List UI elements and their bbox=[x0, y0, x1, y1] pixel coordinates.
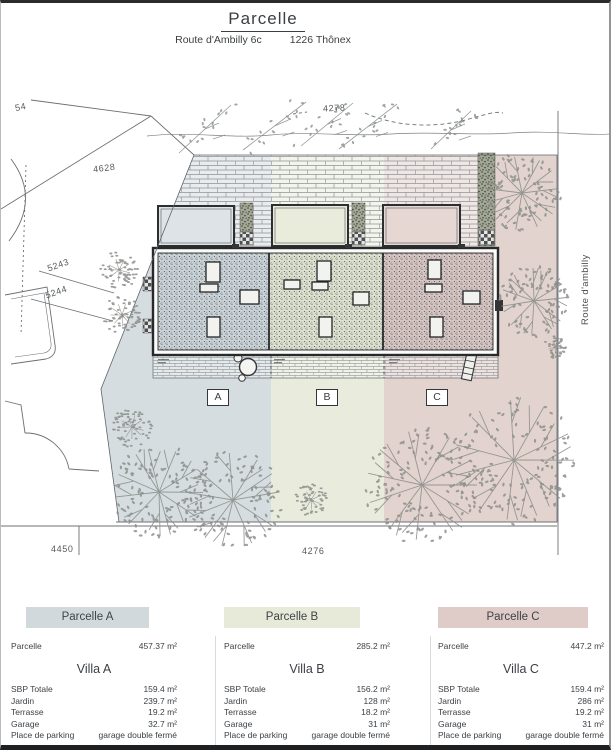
row-value: 286 m² bbox=[578, 697, 604, 706]
page-title: Parcelle bbox=[221, 9, 304, 32]
table-row: Jardin286 m² bbox=[438, 697, 604, 706]
address-line: Route d'Ambilly 6c 1226 Thônex bbox=[1, 34, 525, 46]
table-row: Terrasse19.2 m² bbox=[438, 708, 604, 717]
row-label: Jardin bbox=[224, 697, 247, 706]
dimension-top: 4278 bbox=[323, 102, 346, 113]
row-label: SBP Totale bbox=[224, 685, 266, 694]
table-row: SBP Totale159.4 m² bbox=[438, 685, 604, 694]
dimension-bottom-left: 4450 bbox=[51, 544, 73, 554]
table-row: Jardin128 m² bbox=[224, 697, 390, 706]
row-label: Parcelle bbox=[11, 642, 42, 651]
row-label: Jardin bbox=[438, 697, 461, 706]
row-value: 447.2 m² bbox=[570, 642, 604, 651]
parcel-area-row: Parcelle 457.37 m² bbox=[11, 642, 177, 651]
row-label: Jardin bbox=[11, 697, 34, 706]
row-value: 31 m² bbox=[582, 720, 604, 729]
row-value: garage double fermé bbox=[99, 731, 177, 740]
table-divider bbox=[215, 636, 216, 748]
table-divider bbox=[430, 636, 431, 748]
parcel-table-b: Parcelle B Parcelle 285.2 m² Villa B SBP… bbox=[224, 607, 390, 740]
terrace-band bbox=[153, 353, 498, 381]
garages bbox=[158, 205, 460, 246]
parcel-area-row: Parcelle 285.2 m² bbox=[224, 642, 390, 651]
row-label: Garage bbox=[11, 720, 39, 729]
row-label: SBP Totale bbox=[438, 685, 480, 694]
table-row: Jardin239.7 m² bbox=[11, 697, 177, 706]
row-label: Garage bbox=[224, 720, 252, 729]
table-row: Garage31 m² bbox=[224, 720, 390, 729]
row-value: 159.4 m² bbox=[570, 685, 604, 694]
row-value: 19.2 m² bbox=[148, 708, 177, 717]
parcel-b-header-bar: Parcelle B bbox=[224, 607, 360, 628]
parcel-area-row: Parcelle 447.2 m² bbox=[438, 642, 604, 651]
parcel-a-header-bar: Parcelle A bbox=[26, 607, 149, 628]
villa-b-title: Villa B bbox=[224, 662, 390, 676]
parcel-table-c: Parcelle C Parcelle 447.2 m² Villa C SBP… bbox=[438, 607, 604, 740]
unit-label-b: B bbox=[316, 389, 338, 406]
row-label: Terrasse bbox=[11, 708, 44, 717]
main-building bbox=[153, 244, 503, 355]
row-value: 285.2 m² bbox=[356, 642, 390, 651]
document-page: Parcelle Route d'Ambilly 6c 1226 Thônex bbox=[0, 0, 611, 750]
row-value: garage double fermé bbox=[526, 731, 604, 740]
table-row: Terrasse19.2 m² bbox=[11, 708, 177, 717]
bush-leaves bbox=[99, 252, 139, 289]
row-label: Parcelle bbox=[438, 642, 469, 651]
row-value: 457.37 m² bbox=[139, 642, 177, 651]
page-header: Parcelle bbox=[1, 9, 525, 32]
row-value: 18.2 m² bbox=[361, 708, 390, 717]
row-label: SBP Totale bbox=[11, 685, 53, 694]
table-row: Place de parkinggarage double fermé bbox=[224, 731, 390, 740]
villa-c-title: Villa C bbox=[438, 662, 604, 676]
row-value: 31 m² bbox=[368, 720, 390, 729]
table-row: Garage32.7 m² bbox=[11, 720, 177, 729]
table-row: Garage31 m² bbox=[438, 720, 604, 729]
parcel-c-header-bar: Parcelle C bbox=[438, 607, 588, 628]
row-label: Parcelle bbox=[224, 642, 255, 651]
row-value: 128 m² bbox=[364, 697, 390, 706]
road-label: Route d'ambilly bbox=[580, 254, 591, 325]
table-row: Place de parkinggarage double fermé bbox=[438, 731, 604, 740]
table-row: SBP Totale156.2 m² bbox=[224, 685, 390, 694]
villa-a-title: Villa A bbox=[11, 662, 177, 676]
row-label: Place de parking bbox=[438, 731, 501, 740]
row-value: 32.7 m² bbox=[148, 720, 177, 729]
city-address: 1226 Thônex bbox=[290, 34, 351, 46]
table-row: SBP Totale159.4 m² bbox=[11, 685, 177, 694]
row-value: 19.2 m² bbox=[575, 708, 604, 717]
row-label: Garage bbox=[438, 720, 466, 729]
row-value: 239.7 m² bbox=[143, 697, 177, 706]
table-row: Place de parkinggarage double fermé bbox=[11, 731, 177, 740]
row-label: Place de parking bbox=[224, 731, 287, 740]
table-row: Terrasse18.2 m² bbox=[224, 708, 390, 717]
street-address: Route d'Ambilly 6c bbox=[175, 34, 262, 46]
dimension-bottom-center: 4276 bbox=[302, 546, 324, 556]
unit-label-c: C bbox=[426, 389, 448, 406]
row-value: garage double fermé bbox=[312, 731, 390, 740]
row-label: Terrasse bbox=[438, 708, 471, 717]
row-label: Terrasse bbox=[224, 708, 257, 717]
unit-label-a: A bbox=[207, 389, 229, 406]
row-value: 156.2 m² bbox=[356, 685, 390, 694]
parcel-table-a: Parcelle A Parcelle 457.37 m² Villa A SB… bbox=[11, 607, 177, 740]
row-label: Place de parking bbox=[11, 731, 74, 740]
row-value: 159.4 m² bbox=[143, 685, 177, 694]
